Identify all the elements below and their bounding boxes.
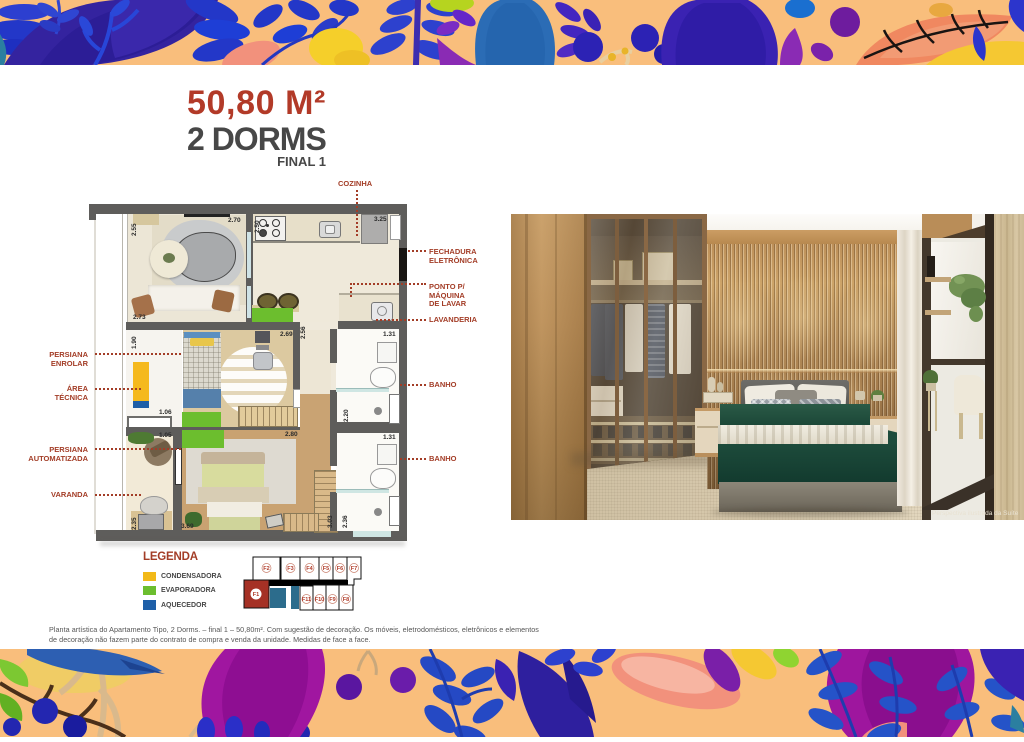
svg-text:F6: F6 xyxy=(337,566,343,572)
svg-text:F7: F7 xyxy=(351,566,357,572)
svg-text:F11: F11 xyxy=(302,597,311,603)
svg-text:F8: F8 xyxy=(343,597,349,603)
svg-text:F10: F10 xyxy=(315,597,324,603)
svg-text:F3: F3 xyxy=(287,566,293,572)
svg-text:F4: F4 xyxy=(306,566,313,572)
svg-text:F9: F9 xyxy=(329,597,335,603)
svg-text:F2: F2 xyxy=(263,566,269,572)
svg-text:F5: F5 xyxy=(323,566,329,572)
svg-text:F1: F1 xyxy=(253,592,259,598)
